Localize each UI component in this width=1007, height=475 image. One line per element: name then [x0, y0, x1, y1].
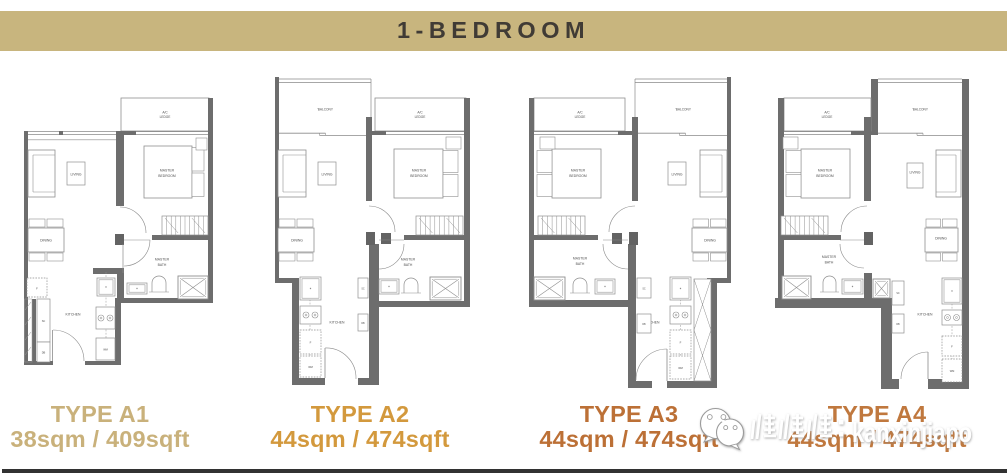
- svg-text:kanxinjiapo: kanxinjiapo: [852, 417, 972, 448]
